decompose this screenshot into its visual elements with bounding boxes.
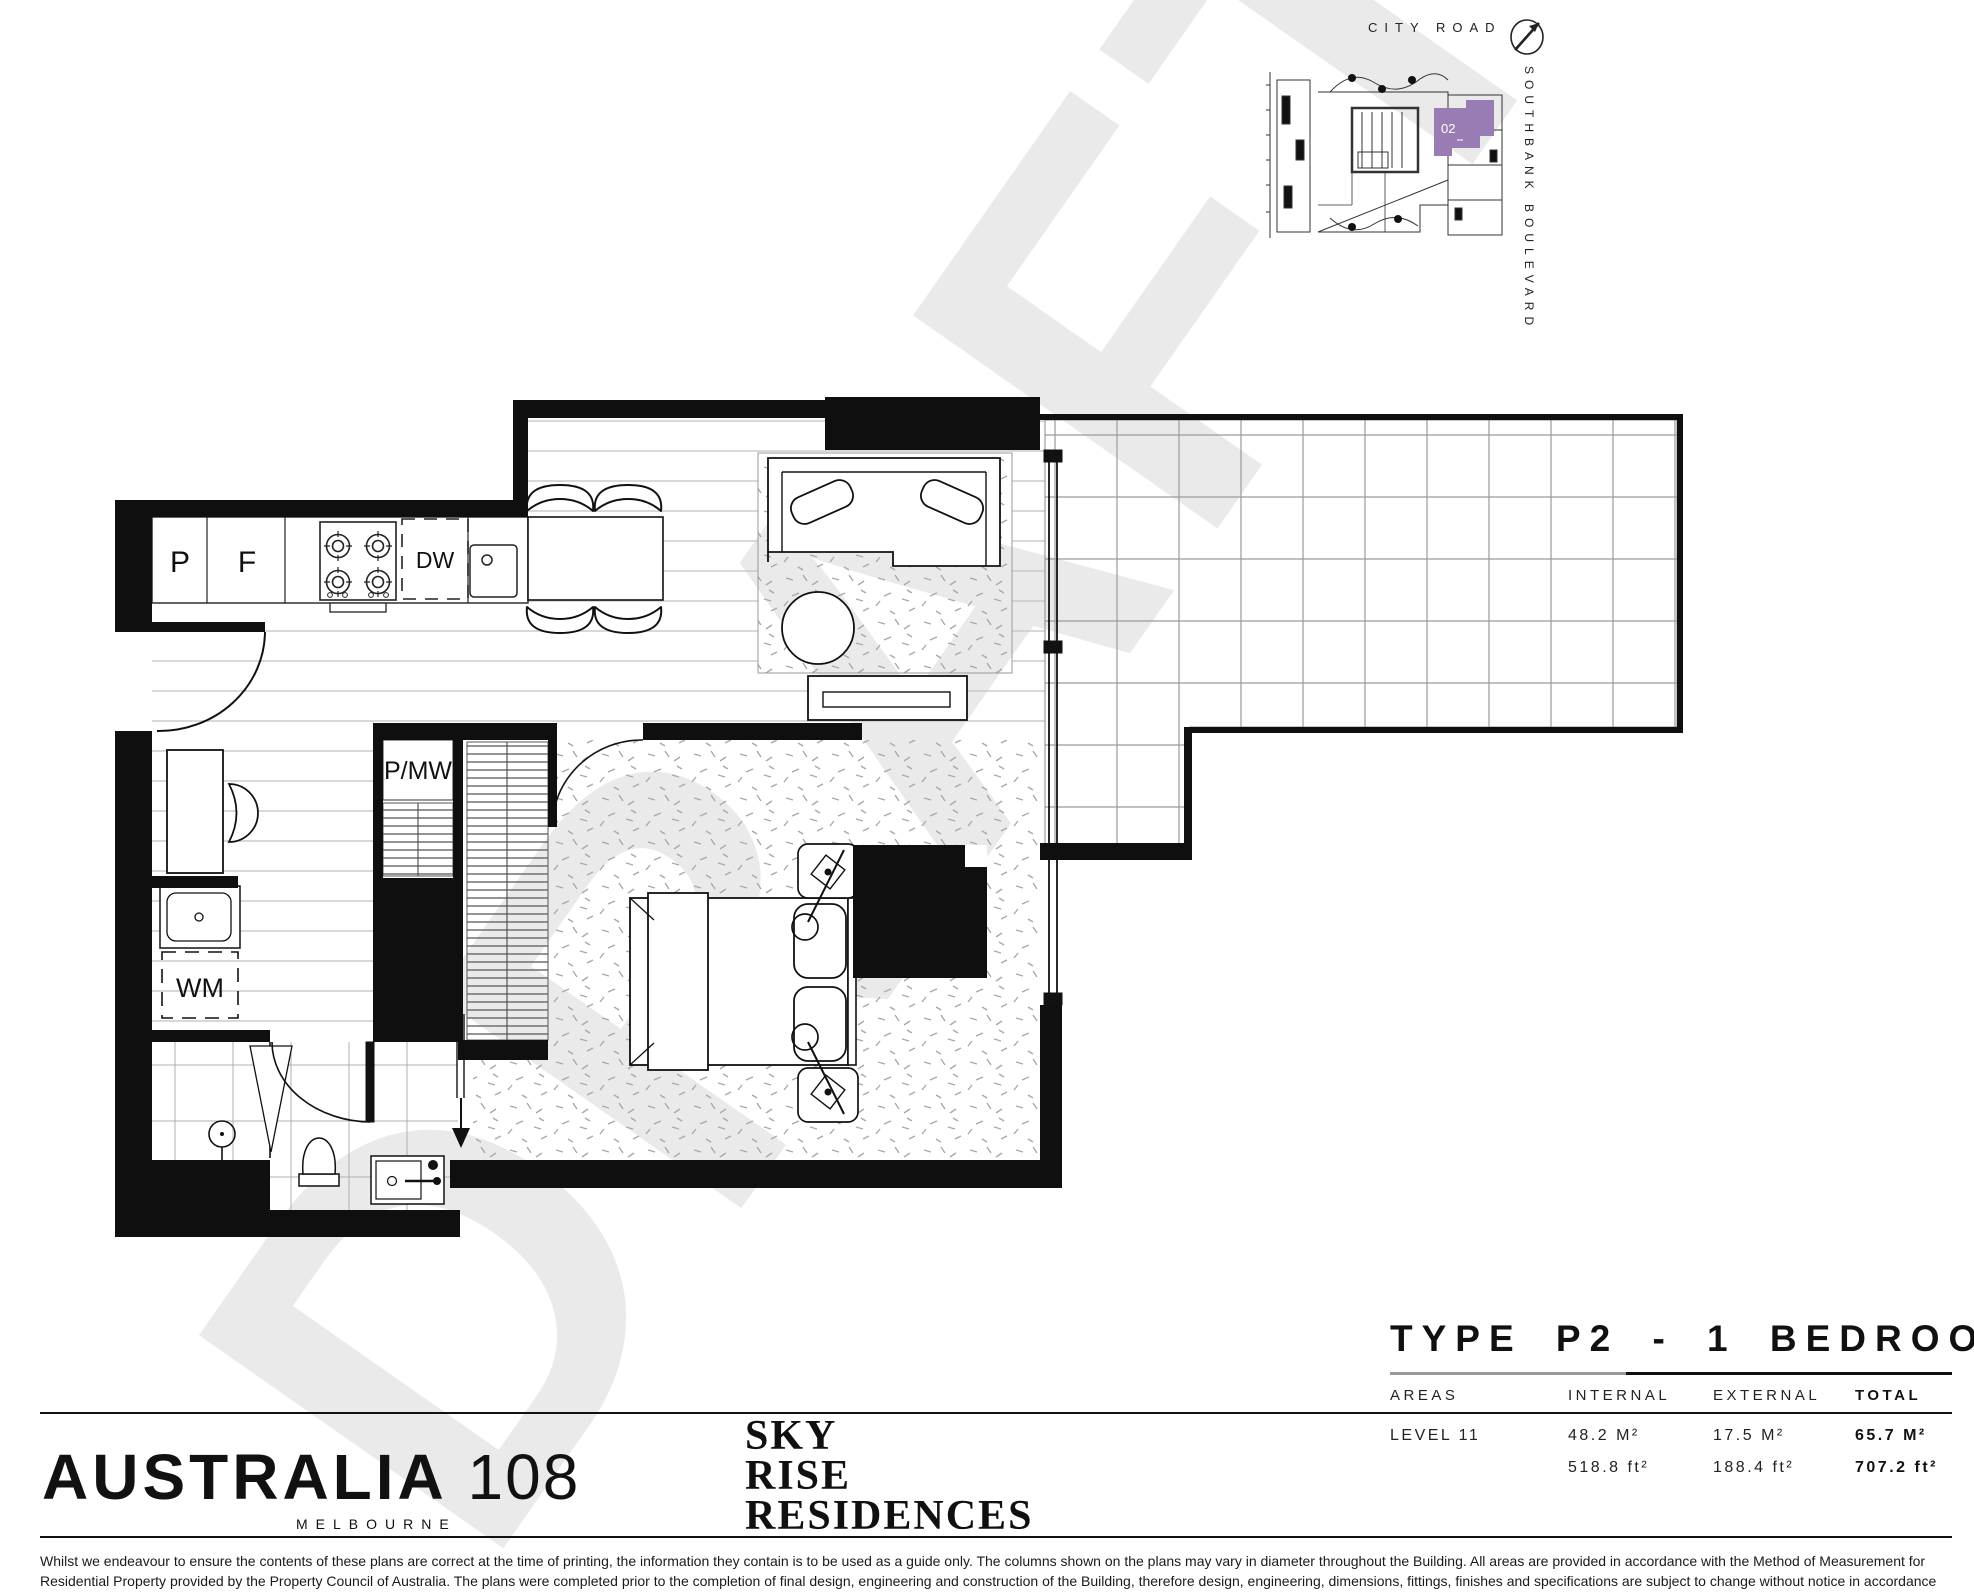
title-rule [1390,1372,1952,1375]
key-plan: 02 [1266,72,1502,238]
kitchen [152,517,528,612]
plan-type-title: TYPE P2 - 1 BEDROOM [1390,1318,1974,1360]
north-arrow-icon [1511,20,1543,54]
internal-header: INTERNAL [1568,1387,1670,1404]
residence-line: SKY [745,1416,1033,1456]
vanity [371,1156,444,1204]
bed-throw [648,893,708,1070]
total-ft2: 707.2 ft² [1855,1459,1938,1477]
floorplan-page: DRAFT [0,0,1974,1595]
city-road-label: CITY ROAD [1368,20,1502,35]
disclaimer-text: Whilst we endeavour to ensure the conten… [40,1552,1954,1595]
logo-melbourne: MELBOURNE [296,1516,457,1532]
logo-australia: AUSTRALIA [42,1441,448,1513]
sky-rise-residences-logo: SKY RISE RESIDENCES [745,1416,1033,1536]
internal-ft2: 518.8 ft² [1568,1459,1649,1477]
oven-handle [330,603,386,612]
total-m2: 65.7 M² [1855,1427,1927,1445]
dining-table [528,517,663,600]
dishwasher-label: DW [416,547,455,573]
level-label: LEVEL 11 [1390,1427,1480,1445]
cooktop [320,522,396,612]
australia-108-logo: AUSTRALIA 108 [42,1440,580,1514]
keyplan-unit-label: 02 [1441,121,1455,136]
southbank-boulevard-label: SOUTHBANK BOULEVARD [1522,66,1536,331]
residence-line: RESIDENCES [745,1496,1033,1536]
external-m2: 17.5 M² [1713,1427,1785,1445]
washing-machine-label: WM [176,973,224,1003]
footer-divider-line [40,1536,1952,1538]
pantry-microwave-label: P/MW [384,757,452,785]
fridge-label: F [238,546,256,579]
external-ft2: 188.4 ft² [1713,1459,1794,1477]
total-header: TOTAL [1855,1387,1921,1404]
pantry-label: P [170,546,190,579]
balcony-tiles [1045,420,1677,851]
coffee-table [782,592,854,664]
areas-header: AREAS [1390,1387,1458,1404]
residence-line: RISE [745,1456,1033,1496]
tv [823,692,950,707]
study-desk [167,750,223,873]
kitchen-sink [470,545,517,597]
internal-m2: 48.2 M² [1568,1427,1640,1445]
external-header: EXTERNAL [1713,1387,1820,1404]
logo-108: 108 [468,1441,581,1513]
table-divider-line [40,1412,1952,1414]
